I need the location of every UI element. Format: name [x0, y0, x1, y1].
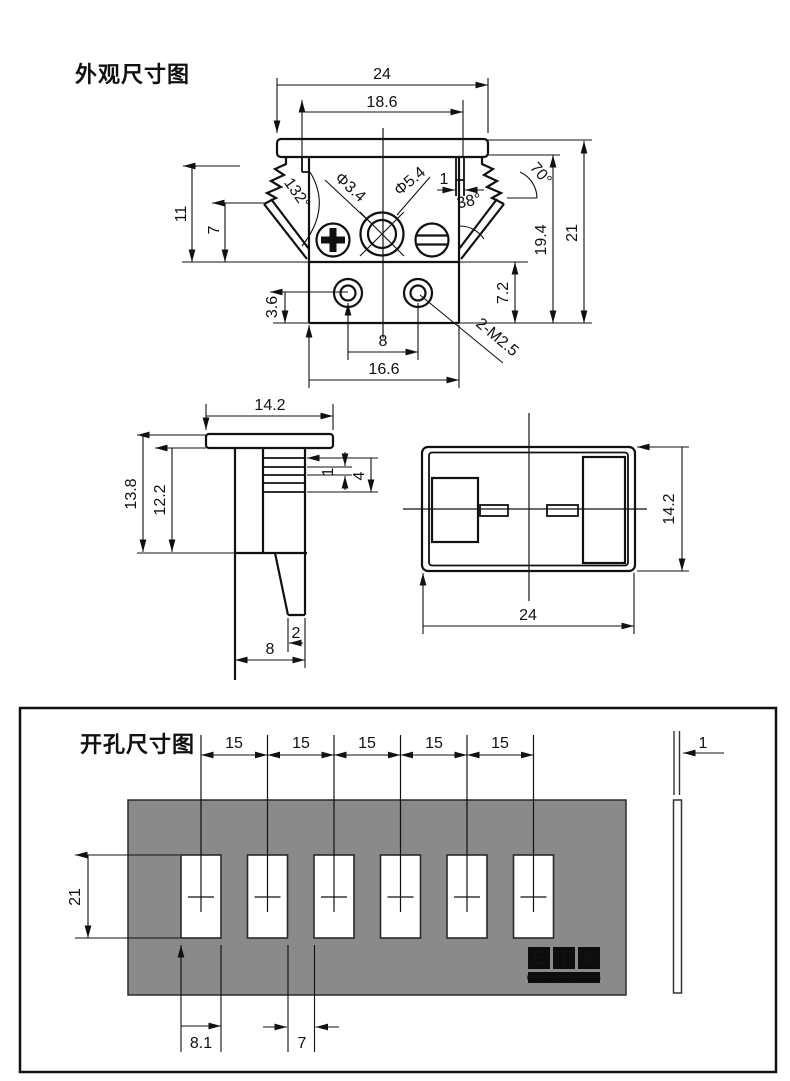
dim-label: 1 [699, 735, 708, 752]
logo-tagline: Electronic Test Accessories [527, 976, 601, 982]
dim-hole-outer-dia: Φ5.4 [391, 164, 430, 215]
left-spring-clip [264, 158, 319, 259]
dim-label: Φ3.4 [331, 170, 368, 206]
logo-letter-e: E [533, 948, 546, 969]
top-view: 14.2 24 [403, 413, 689, 634]
dim-label: Φ5.4 [391, 164, 429, 200]
dim-label: 1 [440, 171, 449, 188]
dim-label: 14.2 [661, 493, 678, 524]
top-view-slot-b [547, 505, 578, 516]
side-view: 14.2 13.8 12.2 1 4 2 [123, 397, 378, 680]
logo-letter-t: T [558, 948, 570, 969]
dim-label: 8 [379, 333, 388, 350]
dim-label: 14.2 [254, 397, 285, 414]
dim-front-11: 11 [173, 166, 240, 262]
dim-label: 18.6 [366, 94, 397, 111]
slotted-screw [416, 224, 449, 257]
dim-label: 7 [298, 1035, 307, 1052]
dim-thread-2-m2-5: 2-M2.5 [420, 295, 522, 363]
dim-label: 8 [266, 641, 275, 658]
dim-label: 24 [373, 66, 391, 83]
dim-label: 24 [519, 607, 537, 624]
dim-label: 15 [425, 735, 443, 752]
eta-logo: E T A Electronic Test Accessories [527, 947, 601, 983]
dim-front-7: 7 [206, 203, 268, 262]
dim-label: 15 [292, 735, 310, 752]
top-view-right-block [583, 457, 625, 563]
cutout-section: 开孔尺寸图 15 15 15 15 15 [20, 708, 776, 1072]
dim-label: 12.2 [152, 484, 169, 515]
phillips-screw [317, 224, 350, 257]
angle-38-label: 38° [455, 191, 482, 213]
dim-label: 2 [292, 625, 301, 642]
dim-side-12-2: 12.2 [152, 448, 206, 552]
dim-label: 2-M2.5 [472, 315, 521, 360]
dim-label: 21 [564, 224, 581, 242]
dim-label: 21 [67, 888, 84, 906]
dim-label: 7.2 [495, 282, 512, 304]
dim-label: 15 [491, 735, 509, 752]
dim-front-21: 21 [564, 141, 584, 323]
dim-label: 11 [173, 206, 190, 223]
dim-thickness-1: 1 [683, 735, 724, 753]
top-view-left-block [432, 478, 478, 542]
mounting-hole-left [334, 279, 362, 307]
dim-label: 4 [351, 471, 368, 480]
dim-label: 19.4 [533, 224, 550, 255]
panel-edge-view: 1 [674, 731, 725, 993]
top-view-slot-a [480, 505, 508, 516]
dim-side-14-2: 14.2 [206, 397, 333, 430]
dim-side-8: 8 [235, 641, 305, 660]
dim-label: 3.6 [264, 296, 281, 318]
cutout-title: 开孔尺寸图 [80, 732, 195, 757]
mounting-hole-right [404, 279, 432, 307]
dim-label: 15 [358, 735, 376, 752]
front-view: 24 18.6 Φ3.4 Φ5.4 1 132° 38° 70° 11 [173, 66, 592, 388]
dim-label: 16.6 [368, 361, 399, 378]
side-flange [206, 434, 333, 448]
technical-drawing-page: 外观尺寸图 [0, 0, 790, 1081]
dim-label: 8.1 [190, 1035, 212, 1052]
dim-label: 15 [225, 735, 243, 752]
dim-pitch-15: 15 15 15 15 15 [201, 735, 534, 755]
angle-70-label: 70° [526, 159, 555, 188]
dim-label: 1 [320, 467, 337, 476]
dim-label: 13.8 [123, 478, 140, 509]
dim-label: 7 [206, 225, 223, 234]
panel-edge [674, 800, 682, 993]
appearance-title: 外观尺寸图 [75, 62, 190, 87]
logo-letter-a: A [582, 948, 596, 969]
drawing-canvas: 外观尺寸图 [0, 0, 790, 1081]
dim-front-7-2: 7.2 [495, 262, 515, 323]
dim-hole-inner-dia: Φ3.4 [325, 170, 372, 224]
